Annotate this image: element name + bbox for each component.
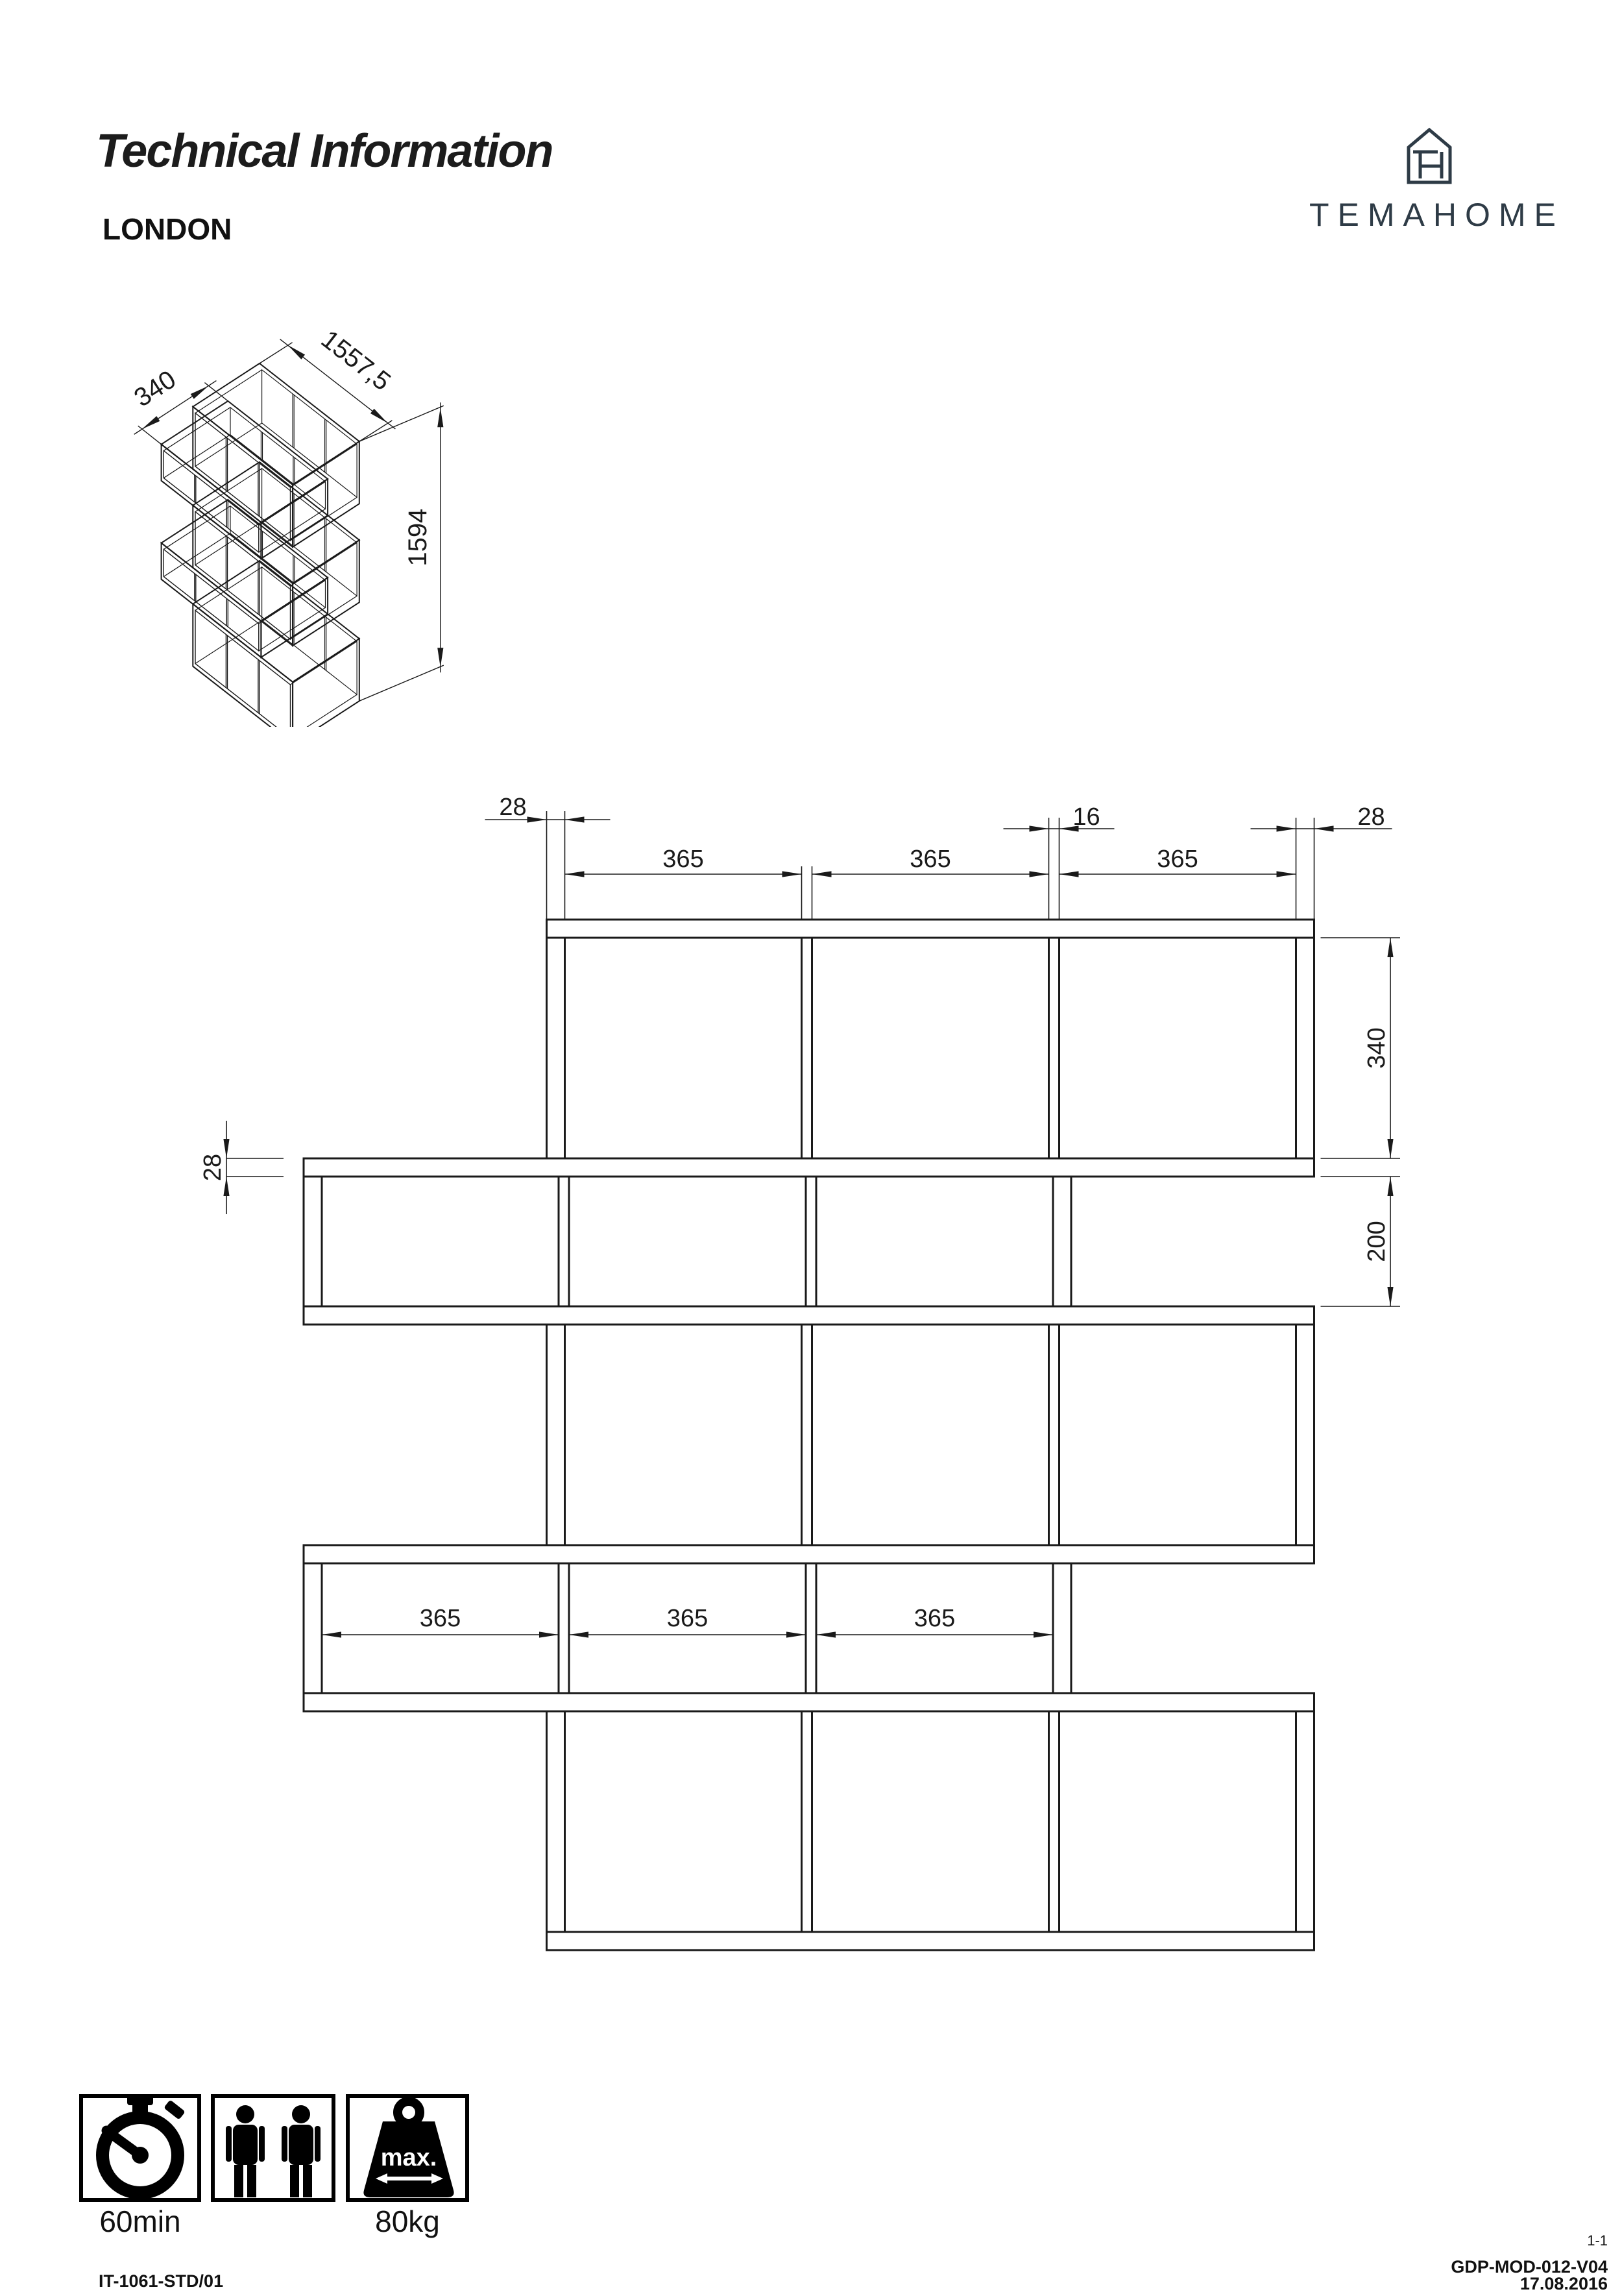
dim-arrow — [1314, 825, 1334, 831]
panel-outline — [304, 1177, 322, 1306]
panel-outline — [1049, 938, 1059, 1158]
panel-outline — [547, 938, 565, 1158]
technical-sheet-page: Technical Information LONDON TEMAHOME 34… — [0, 0, 1622, 2296]
revision-date: 17.08.2016 — [1413, 2274, 1608, 2294]
dim-arrow — [1030, 825, 1049, 831]
box-top-face — [193, 561, 359, 682]
panel-outline — [1049, 1711, 1059, 1932]
dim-arrow — [565, 816, 585, 822]
dim-label: 16 — [1072, 803, 1100, 831]
person-figure — [226, 2105, 265, 2197]
dim-label: 365 — [914, 1605, 955, 1632]
panel-outline — [1296, 1711, 1314, 1932]
drawing-line — [359, 665, 444, 701]
dim-label: 365 — [1157, 846, 1198, 873]
dim-label: 340 — [129, 365, 181, 412]
dim-label: 28 — [1357, 803, 1385, 831]
dim-label: 365 — [420, 1605, 461, 1632]
panel-outline — [806, 1563, 816, 1693]
box-top-face — [162, 401, 328, 522]
dim-arrow — [812, 871, 832, 877]
dim-arrow — [1277, 825, 1296, 831]
page-number: 1-1 — [1413, 2232, 1608, 2249]
brand-logo: TEMAHOME — [1309, 127, 1549, 234]
dim-arrow — [140, 416, 160, 432]
panel-outline — [547, 920, 1314, 938]
dim-arrow — [786, 1631, 806, 1637]
panel-outline — [559, 1563, 569, 1693]
drawing-line — [138, 426, 162, 444]
doc-code: IT-1061-STD/01 — [99, 2271, 223, 2291]
panel-outline — [304, 1545, 1314, 1563]
dim-arrow — [370, 409, 389, 426]
back-opening — [262, 469, 357, 596]
dim-arrow — [1387, 1139, 1393, 1158]
front-opening — [195, 413, 291, 541]
panel-outline — [559, 1177, 569, 1306]
drawing-line — [290, 641, 357, 685]
box-front-face — [193, 604, 293, 727]
max-load-label: 80kg — [346, 2204, 469, 2239]
page-title: Technical Information — [96, 125, 552, 178]
panel-outline — [1296, 938, 1314, 1158]
panel-outline — [1053, 1563, 1071, 1693]
panel-outline — [547, 1932, 1314, 1950]
dim-label: 365 — [662, 846, 703, 873]
drawing-line — [260, 343, 293, 363]
dim-label: 28 — [199, 1154, 226, 1181]
dim-arrow — [1387, 1177, 1393, 1196]
front-opening — [195, 512, 291, 640]
drawing-line — [204, 383, 228, 401]
dim-label: 28 — [499, 794, 526, 821]
drawing-line — [195, 469, 262, 512]
drawing-line — [195, 567, 262, 611]
max-weight-icon: max. — [346, 2094, 469, 2202]
dim-arrow — [1387, 938, 1393, 957]
dim-arrow — [565, 871, 585, 877]
panel-outline — [547, 1325, 565, 1545]
back-opening — [262, 567, 357, 695]
panel-outline — [1053, 1177, 1071, 1306]
box-top-face — [193, 462, 359, 583]
dim-label: 365 — [667, 1605, 708, 1632]
drawing-line — [290, 497, 357, 541]
dim-label: 1557,5 — [316, 325, 396, 397]
panel-outline — [304, 1563, 322, 1693]
dim-arrow — [1277, 871, 1296, 877]
front-view-drawing: 28162836536536534020028365365365 — [182, 766, 1466, 1986]
dim-arrow — [322, 1631, 341, 1637]
two-people-icon — [211, 2094, 335, 2202]
panel-outline — [802, 1325, 812, 1545]
dim-arrow — [782, 871, 802, 877]
drawing-line — [359, 421, 393, 441]
dim-arrow — [816, 1631, 836, 1637]
dim-arrow — [1030, 871, 1049, 877]
drawing-line — [195, 423, 262, 467]
stopwatch-icon — [79, 2094, 201, 2202]
panel-outline — [304, 1158, 1314, 1177]
drawing-line — [290, 596, 357, 639]
house-monogram-icon — [1405, 127, 1453, 184]
panel-outline — [806, 1177, 816, 1306]
drawing-line — [290, 694, 357, 727]
back-opening — [262, 370, 357, 498]
panel-outline — [304, 1306, 1314, 1325]
dim-label: 340 — [1363, 1027, 1390, 1068]
panel-outline — [547, 1711, 565, 1932]
dim-arrow — [437, 648, 443, 667]
drawing-line — [195, 370, 262, 413]
assembly-time-label: 60min — [79, 2204, 201, 2239]
dim-arrow — [539, 1631, 559, 1637]
dim-arrow — [569, 1631, 588, 1637]
back-opening — [230, 408, 326, 509]
panel-outline — [802, 1711, 812, 1932]
dim-arrow — [1059, 871, 1079, 877]
panel-outline — [1296, 1325, 1314, 1545]
brand-wordmark: TEMAHOME — [1309, 196, 1549, 234]
panel-outline — [304, 1693, 1314, 1711]
max-label: max. — [381, 2144, 437, 2171]
dim-label: 200 — [1363, 1221, 1390, 1262]
dim-arrow — [527, 816, 547, 822]
panel-outline — [1049, 1325, 1059, 1545]
box-top-face — [162, 500, 328, 621]
product-name: LONDON — [103, 212, 232, 247]
panel-outline — [802, 938, 812, 1158]
isometric-view-drawing: 3401557,51594 — [91, 273, 584, 727]
dim-arrow — [1387, 1287, 1393, 1306]
dim-arrow — [1034, 1631, 1053, 1637]
person-figure — [282, 2105, 321, 2197]
back-opening — [230, 506, 326, 608]
dim-label: 1594 — [404, 509, 432, 567]
dim-arrow — [437, 408, 443, 427]
dim-label: 365 — [910, 846, 950, 873]
